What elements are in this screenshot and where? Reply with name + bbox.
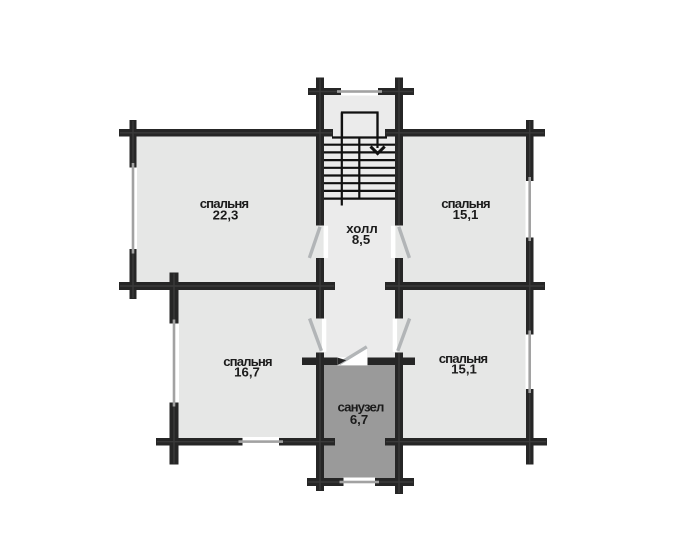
svg-text:22,3: 22,3 [213,207,239,222]
svg-text:15,1: 15,1 [453,207,479,222]
svg-text:16,7: 16,7 [234,364,260,379]
svg-text:15,1: 15,1 [451,361,477,376]
svg-text:6,7: 6,7 [350,412,368,427]
svg-text:8,5: 8,5 [352,232,370,247]
